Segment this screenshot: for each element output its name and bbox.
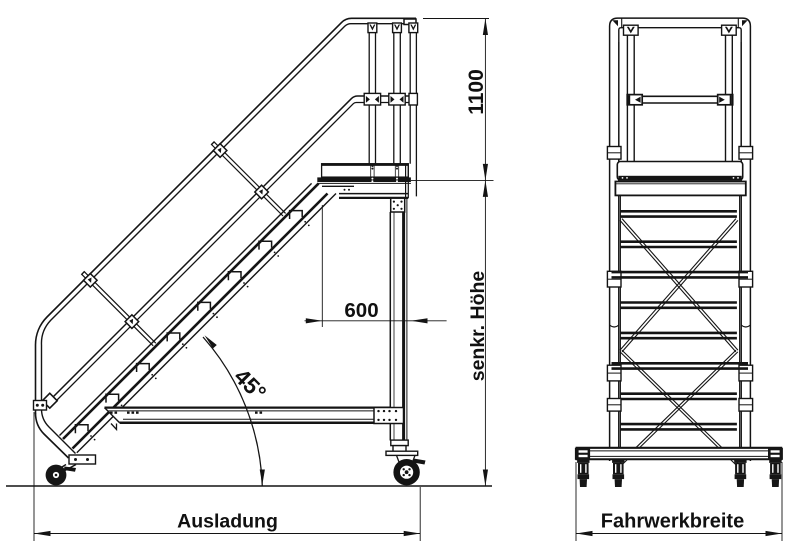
- svg-text:Fahrwerkbreite: Fahrwerkbreite: [601, 511, 744, 533]
- svg-text:600: 600: [344, 299, 378, 322]
- svg-text:Ausladung: Ausladung: [177, 511, 278, 533]
- svg-text:senkr. Höhe: senkr. Höhe: [467, 271, 489, 382]
- svg-text:1100: 1100: [465, 69, 488, 115]
